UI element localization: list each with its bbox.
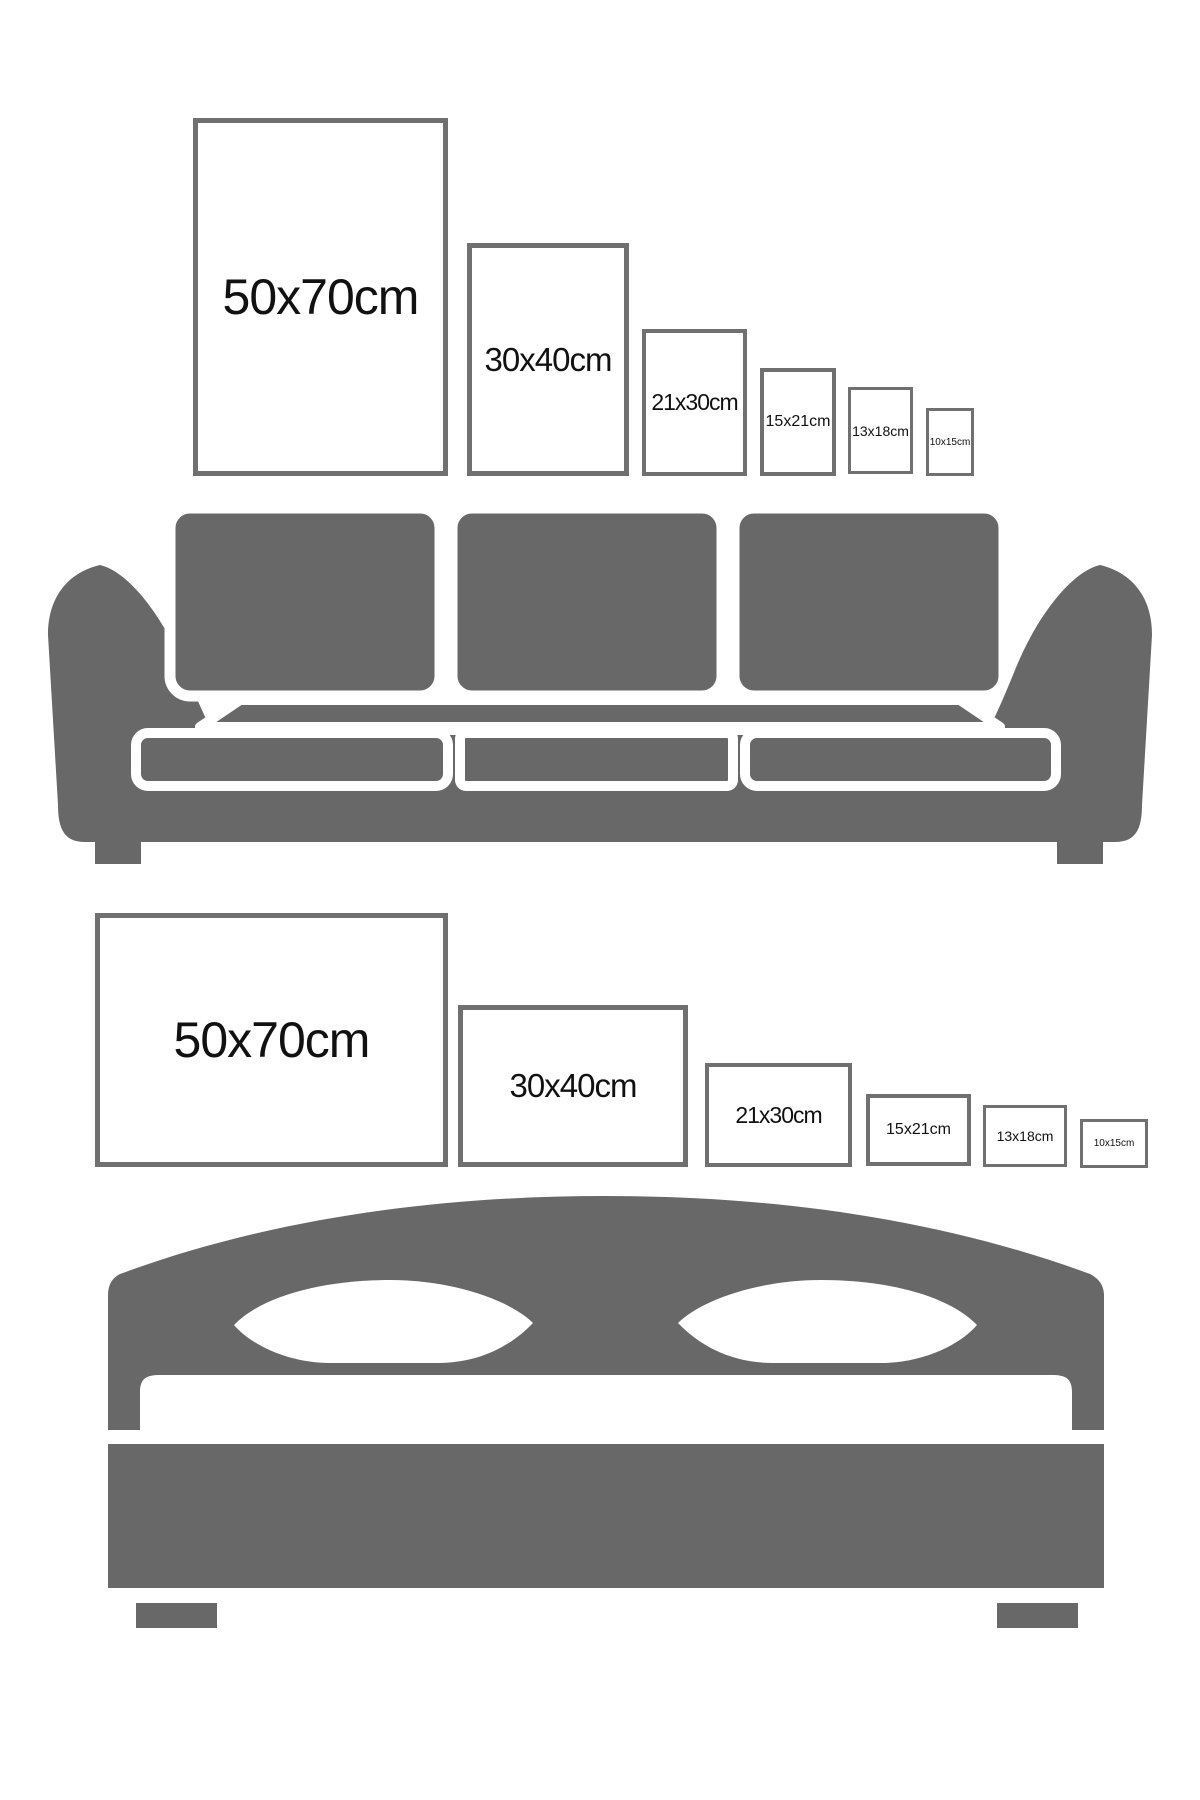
frame-size-label: 30x40cm [485, 341, 612, 379]
frame-portrait-50x70: 50x70cm [193, 118, 448, 476]
sofa-seat-cushion [460, 733, 733, 786]
frame-size-label: 30x40cm [510, 1067, 637, 1105]
frame-size-label: 21x30cm [651, 389, 737, 416]
sofa-back-cushion [734, 508, 1004, 696]
sofa-back-cushion [452, 508, 722, 696]
frame-size-label: 21x30cm [735, 1102, 821, 1129]
frame-landscape-13x18: 13x18cm [983, 1105, 1067, 1167]
size-guide-page: 50x70cm 30x40cm 21x30cm 15x21cm 13x18cm … [0, 0, 1200, 1800]
bed-leg-right [997, 1603, 1078, 1628]
frame-portrait-21x30: 21x30cm [642, 329, 747, 476]
frame-size-label: 50x70cm [223, 268, 419, 326]
sofa-seat-platform [200, 700, 1000, 727]
bed-leg-left [136, 1603, 217, 1628]
frame-landscape-15x21: 15x21cm [866, 1094, 971, 1166]
frame-size-label: 50x70cm [174, 1011, 370, 1069]
frame-size-label: 13x18cm [852, 423, 909, 439]
frame-landscape-21x30: 21x30cm [705, 1063, 852, 1167]
bed-mattress [108, 1444, 1104, 1588]
frame-size-label: 13x18cm [997, 1128, 1054, 1144]
frame-portrait-13x18: 13x18cm [848, 387, 913, 474]
bed-illustration [90, 1190, 1120, 1635]
frame-size-label: 10x15cm [1094, 1138, 1135, 1149]
frame-landscape-30x40: 30x40cm [458, 1005, 688, 1167]
sofa-seat-cushion [136, 733, 448, 786]
frame-size-label: 15x21cm [886, 1121, 951, 1139]
sofa-illustration [40, 500, 1160, 870]
frame-landscape-10x15: 10x15cm [1080, 1119, 1148, 1168]
frame-size-label: 10x15cm [930, 437, 971, 448]
sofa-seat-cushion [745, 733, 1056, 786]
frame-landscape-50x70: 50x70cm [95, 913, 448, 1167]
frame-portrait-30x40: 30x40cm [467, 243, 629, 476]
sofa-back-cushion [170, 508, 440, 696]
frame-size-label: 15x21cm [766, 413, 831, 431]
frame-portrait-15x21: 15x21cm [760, 368, 836, 476]
frame-portrait-10x15: 10x15cm [926, 408, 974, 476]
